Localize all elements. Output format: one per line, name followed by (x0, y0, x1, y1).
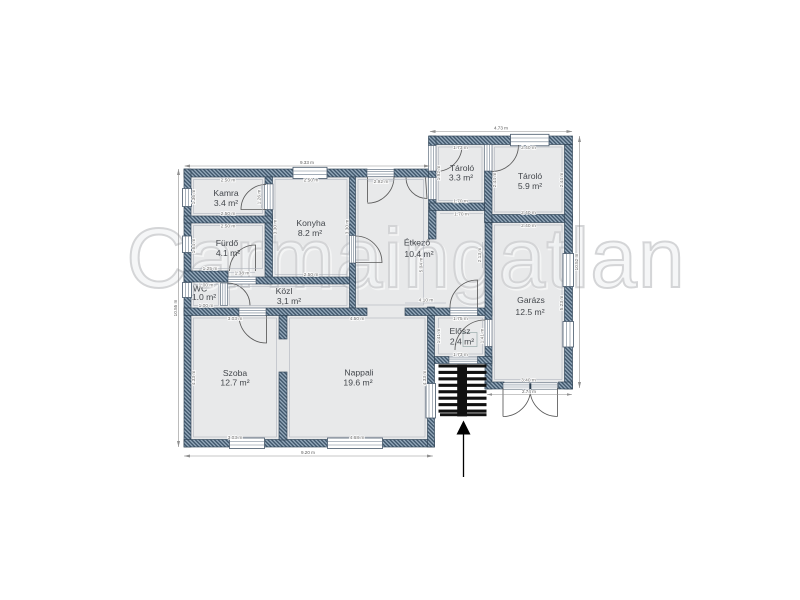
svg-text:8.2 m²: 8.2 m² (298, 228, 322, 238)
svg-text:9.33 m: 9.33 m (300, 160, 314, 165)
svg-text:2.44 m: 2.44 m (492, 173, 498, 188)
svg-text:3.3 m²: 3.3 m² (449, 173, 473, 183)
svg-text:4.73 m: 4.73 m (494, 126, 508, 131)
svg-text:10.52 m: 10.52 m (574, 254, 579, 271)
svg-text:2.50 m: 2.50 m (221, 211, 236, 217)
svg-text:1.73 m: 1.73 m (453, 352, 468, 358)
svg-text:3.4 m²: 3.4 m² (214, 198, 238, 208)
svg-text:2.40 m: 2.40 m (521, 223, 536, 229)
svg-text:1.73 m: 1.73 m (453, 145, 468, 151)
svg-text:3,1 m²: 3,1 m² (277, 296, 301, 306)
svg-text:2.13 m: 2.13 m (477, 248, 483, 263)
svg-text:3.03 m: 3.03 m (228, 435, 243, 441)
svg-text:1.36 m: 1.36 m (191, 190, 197, 205)
svg-text:4.33 m: 4.33 m (191, 371, 197, 386)
svg-text:4.50 m: 4.50 m (350, 316, 365, 322)
svg-text:1.92 m: 1.92 m (436, 166, 442, 181)
svg-text:2.40 m: 2.40 m (521, 210, 536, 216)
svg-text:4.33 m: 4.33 m (422, 371, 428, 386)
svg-text:1.38 m: 1.38 m (235, 270, 250, 276)
svg-text:12.5 m²: 12.5 m² (515, 307, 544, 317)
svg-text:Elősz: Elősz (449, 326, 470, 336)
svg-text:12.7 m²: 12.7 m² (220, 378, 249, 388)
svg-text:3.40 m: 3.40 m (521, 377, 536, 383)
svg-text:2.92 m: 2.92 m (374, 179, 389, 185)
svg-text:Tároló: Tároló (450, 163, 475, 173)
svg-text:Tároló: Tároló (518, 171, 543, 181)
svg-text:2.50 m: 2.50 m (221, 177, 236, 183)
svg-text:3.03 m: 3.03 m (228, 316, 243, 322)
svg-text:9.20 m: 9.20 m (301, 450, 315, 455)
svg-text:2.50 m: 2.50 m (221, 223, 236, 229)
svg-text:2.50 m: 2.50 m (304, 272, 319, 278)
svg-text:1.70 m: 1.70 m (454, 211, 469, 217)
svg-text:19.6 m²: 19.6 m² (343, 377, 372, 387)
svg-text:1.00 m: 1.00 m (199, 303, 214, 309)
svg-text:10.55 m: 10.55 m (173, 300, 178, 317)
svg-text:2.40 m: 2.40 m (521, 145, 536, 151)
svg-text:2.50 m: 2.50 m (304, 177, 319, 183)
svg-text:Nappali: Nappali (344, 368, 373, 378)
svg-text:1.64 m: 1.64 m (191, 239, 197, 254)
svg-text:3.30 m: 3.30 m (272, 220, 278, 235)
svg-text:3.30 m: 3.30 m (344, 220, 350, 235)
svg-text:2.74 m: 2.74 m (522, 389, 536, 394)
svg-text:10.4 m²: 10.4 m² (404, 249, 433, 259)
svg-text:Étkező: Étkező (404, 238, 430, 248)
svg-text:4.1 m²: 4.1 m² (216, 248, 240, 258)
svg-text:2.4 m²: 2.4 m² (450, 336, 474, 346)
svg-text:4.68 m: 4.68 m (350, 435, 365, 441)
svg-text:Fürdő: Fürdő (216, 238, 239, 248)
svg-text:Kamra: Kamra (213, 188, 239, 198)
svg-text:1.41 m: 1.41 m (436, 329, 442, 344)
svg-text:1.25 m: 1.25 m (203, 266, 218, 272)
svg-text:1.75 m: 1.75 m (453, 316, 468, 322)
svg-text:5.9 m²: 5.9 m² (518, 181, 542, 191)
svg-text:5.23 m: 5.23 m (559, 296, 565, 311)
svg-text:Szoba: Szoba (223, 368, 248, 378)
svg-text:Garázs: Garázs (517, 295, 545, 305)
svg-text:Konyha: Konyha (296, 218, 325, 228)
svg-text:Közl: Közl (276, 286, 293, 296)
svg-text:1.70 m: 1.70 m (453, 198, 468, 204)
svg-text:2.44 m: 2.44 m (559, 173, 565, 188)
svg-text:5.04 m: 5.04 m (418, 258, 424, 273)
svg-text:1.26 m: 1.26 m (256, 190, 262, 205)
svg-text:1.41 m: 1.41 m (480, 329, 486, 344)
svg-text:1.0 m²: 1.0 m² (192, 292, 216, 302)
svg-text:1.00 m: 1.00 m (199, 282, 214, 288)
svg-text:4.10 m: 4.10 m (419, 298, 434, 304)
